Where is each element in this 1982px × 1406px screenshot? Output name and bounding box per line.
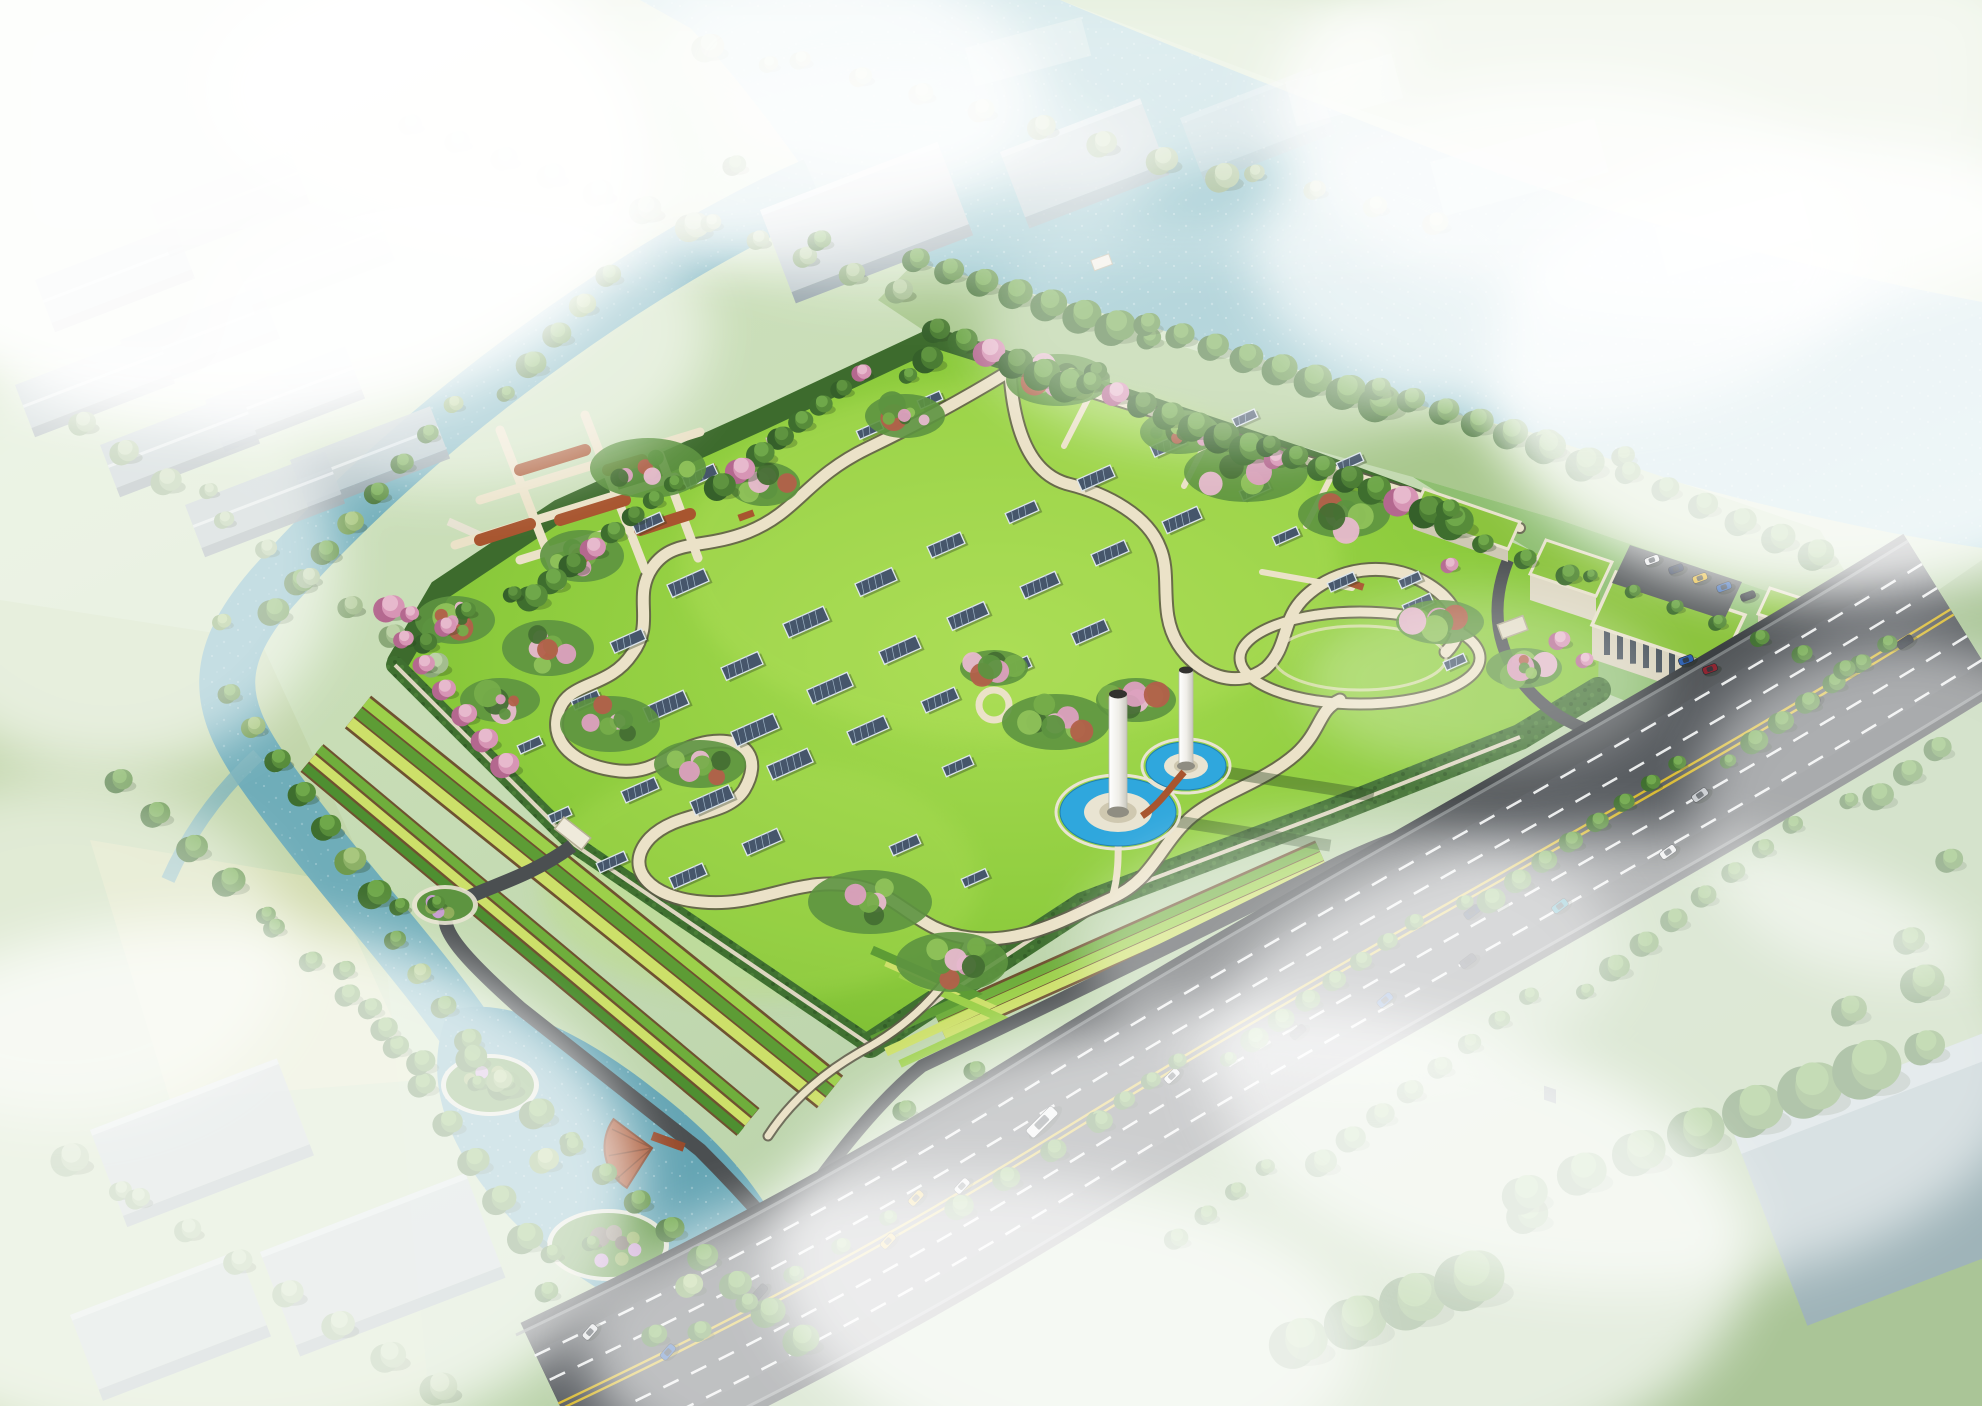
tree-crown: [399, 631, 409, 641]
shrub-blob: [496, 694, 506, 704]
shrub-blob: [1017, 710, 1042, 735]
shrub-blob: [679, 461, 696, 478]
tree-crown: [930, 319, 944, 333]
fog-patch: [1080, 820, 1620, 1080]
tree-crown: [608, 522, 620, 534]
tree-crown: [956, 329, 971, 344]
tree-crown: [1629, 585, 1637, 593]
tree-crown: [479, 729, 493, 743]
tree-crown: [1520, 550, 1531, 561]
shrub-blob: [610, 469, 628, 487]
shrub-blob: [978, 655, 1003, 680]
tree-crown: [345, 596, 358, 609]
tree-crown: [713, 473, 729, 489]
rendering-canvas: [0, 0, 1982, 1406]
shrub-blob: [962, 955, 985, 978]
stack-body: [1179, 670, 1193, 766]
shrub-blob: [644, 467, 661, 484]
shrub-blob: [593, 695, 612, 714]
shrub-blob: [898, 409, 911, 422]
tree-crown: [344, 847, 360, 863]
tree-crown: [1443, 499, 1455, 511]
tree-crown: [628, 506, 639, 517]
aerial-site-rendering: [0, 0, 1982, 1406]
tree-crown: [546, 569, 561, 584]
shrub-blob: [845, 884, 867, 906]
tree-crown: [1419, 496, 1438, 515]
stack-top: [1179, 667, 1193, 674]
tree-crown: [1478, 534, 1489, 545]
tree-crown: [508, 586, 517, 595]
tree-crown: [345, 512, 358, 525]
shrub-blob: [711, 751, 731, 771]
tree-crown: [382, 595, 398, 611]
shrub-blob: [708, 768, 725, 785]
shrub-blob: [1199, 472, 1223, 496]
stack-base: [1107, 807, 1129, 818]
shrub-cluster: [502, 620, 594, 676]
shrub-blob: [883, 412, 895, 424]
shrub-cluster: [808, 870, 932, 934]
stack-body: [1109, 694, 1127, 812]
tree-crown: [857, 364, 867, 374]
tree-crown: [1341, 466, 1357, 482]
tree-crown: [1798, 645, 1809, 656]
shrub-blob: [648, 450, 664, 466]
tree-crown: [1393, 486, 1411, 504]
tree-crown: [420, 633, 432, 645]
shrub-blob: [967, 937, 986, 956]
tree-crown: [406, 606, 416, 616]
fog-patch: [1300, 590, 1660, 770]
shrub-blob: [679, 761, 700, 782]
stack-top: [1109, 690, 1127, 699]
tree-crown: [1587, 570, 1594, 577]
shrub-blob: [581, 714, 599, 732]
tree-crown: [498, 753, 513, 768]
shrub-blob: [537, 639, 558, 660]
tree-crown: [390, 931, 401, 942]
canal-island: [412, 885, 478, 925]
tree-crown: [1367, 476, 1384, 493]
shrub-blob: [1033, 694, 1055, 716]
shrub-cluster: [1096, 678, 1176, 722]
stack-base: [1177, 762, 1195, 771]
tree-crown: [921, 347, 937, 363]
tree-crown: [1755, 630, 1765, 640]
tree-crown: [587, 538, 600, 551]
tree-crown: [904, 368, 913, 377]
tree-crown: [1646, 775, 1656, 785]
tree-crown: [816, 395, 828, 407]
shrub-blob: [919, 414, 930, 425]
tree-crown: [795, 411, 808, 424]
shrub-cluster: [1002, 694, 1110, 750]
tree-crown: [272, 749, 285, 762]
tree-crown: [1446, 558, 1455, 567]
shrub-blob: [1041, 715, 1065, 739]
shrub-blob: [1070, 720, 1093, 743]
tree-crown: [459, 704, 472, 717]
tree-crown: [664, 1217, 679, 1232]
tree-crown: [525, 584, 541, 600]
shrub-blob: [1318, 503, 1345, 530]
tree-crown: [432, 896, 441, 905]
tree-crown: [1289, 446, 1302, 459]
shrub-blob: [926, 939, 948, 961]
tree-crown: [669, 475, 679, 485]
tree-crown: [1671, 600, 1680, 609]
tree-crown: [419, 655, 430, 666]
tree-crown: [441, 618, 452, 629]
tree-crown: [367, 880, 384, 897]
tree-crown: [1315, 456, 1330, 471]
shrub-blob: [499, 708, 511, 720]
tree-crown: [1620, 794, 1631, 805]
top-haze: [0, 0, 1982, 260]
tree-crown: [734, 458, 749, 473]
tree-crown: [754, 442, 768, 456]
shrub-blob: [556, 644, 576, 664]
tree-crown: [395, 898, 405, 908]
tree-crown: [113, 769, 127, 783]
tree-crown: [1562, 565, 1574, 577]
tree-crown: [837, 380, 848, 391]
tree-crown: [320, 815, 335, 830]
shrub-blob: [508, 696, 519, 707]
shrub-cluster: [896, 932, 1008, 992]
tree-crown: [1593, 813, 1604, 824]
tree-crown: [649, 491, 660, 502]
shrub-blob: [1144, 682, 1170, 708]
tree-crown: [1673, 756, 1682, 765]
shrub-blob: [613, 710, 633, 730]
tree-crown: [567, 553, 581, 567]
shrub-blob: [777, 473, 797, 493]
tree-crown: [439, 680, 451, 692]
tree-crown: [1713, 615, 1722, 624]
tree-crown: [461, 602, 471, 612]
shrub-cluster: [654, 740, 746, 788]
tree-crown: [371, 483, 384, 496]
tree-crown: [775, 427, 789, 441]
tree-crown: [296, 782, 310, 796]
